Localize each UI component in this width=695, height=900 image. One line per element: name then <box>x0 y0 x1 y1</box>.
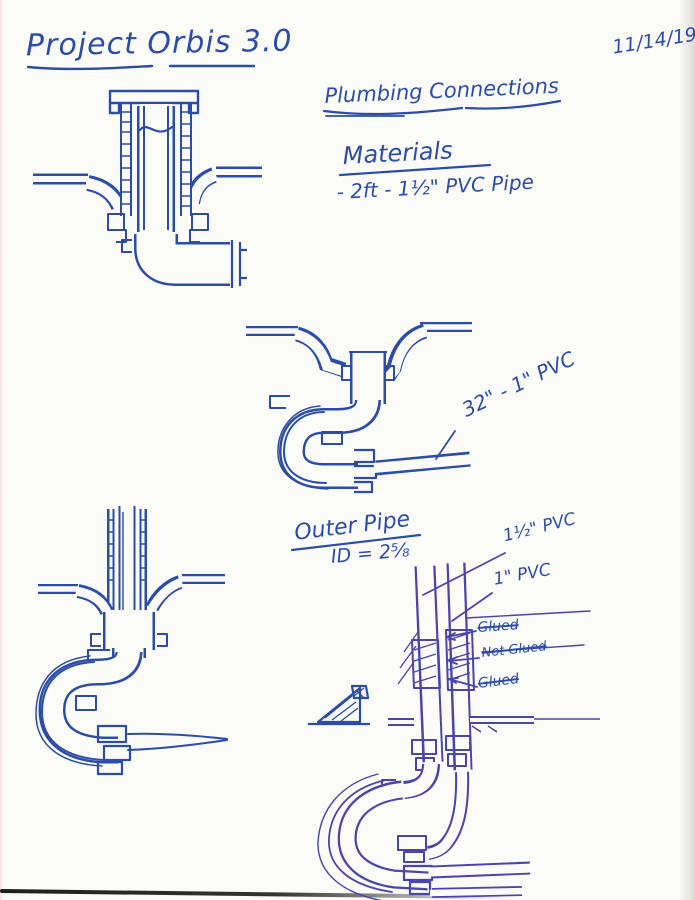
figure-front-assembly <box>30 91 265 288</box>
figure-trap-assembly <box>243 327 475 492</box>
scanned-page: Project Orbis 3.0 11/14/19 Plumbing Conn… <box>0 0 695 900</box>
callout-glued-top: Glued <box>477 617 519 636</box>
sketch-canvas <box>0 0 695 900</box>
page-title: Project Orbis 3.0 <box>26 24 293 64</box>
figure-double-pipe-detail <box>318 553 600 900</box>
figure-triangle-sketch <box>308 686 370 724</box>
figure-tall-assembly <box>35 503 228 774</box>
heading-materials: Materials <box>342 136 453 170</box>
